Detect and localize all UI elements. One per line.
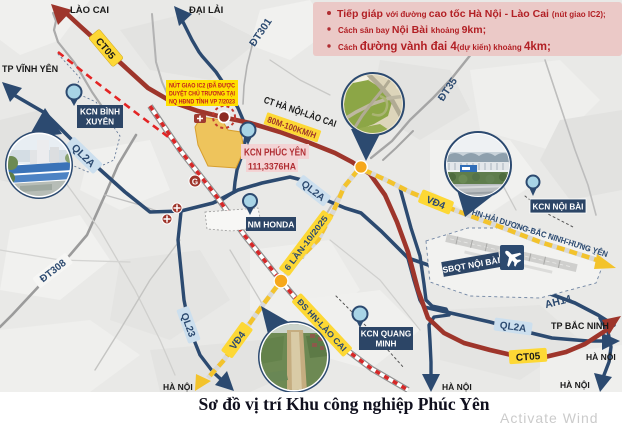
svg-text:KCN BÌNH: KCN BÌNH <box>80 107 120 117</box>
svg-text:NQ HĐND TỈNH VP 7/2023: NQ HĐND TỈNH VP 7/2023 <box>169 97 235 106</box>
svg-text:NÚT GIAO IC2 (ĐÃ ĐƯỢC: NÚT GIAO IC2 (ĐÃ ĐƯỢC <box>169 81 235 90</box>
svg-text:LÀO CAI: LÀO CAI <box>70 5 109 16</box>
svg-text:NM HONDA: NM HONDA <box>248 220 295 230</box>
svg-text:MINH: MINH <box>376 340 397 349</box>
svg-text:Tiếp giáp với đường cao tốc Hà: Tiếp giáp với đường cao tốc Hà Nội - Lào… <box>337 8 606 20</box>
svg-text:TP VĨNH YÊN: TP VĨNH YÊN <box>2 63 58 74</box>
svg-text:HÀ NỘI: HÀ NỘI <box>586 351 616 362</box>
svg-text:XUYÊN: XUYÊN <box>86 116 114 127</box>
svg-text:ĐẠI LẢI: ĐẠI LẢI <box>189 4 223 16</box>
svg-text:G: G <box>192 178 198 187</box>
svg-text:TP BẮC NINH: TP BẮC NINH <box>551 321 609 331</box>
svg-text:DUYỆT CHỦ TRƯƠNG TẠI: DUYỆT CHỦ TRƯƠNG TẠI <box>169 89 235 98</box>
svg-text:KCN PHÚC YÊN: KCN PHÚC YÊN <box>244 146 306 159</box>
svg-text:HÀ NỘI: HÀ NỘI <box>560 379 590 390</box>
svg-text:Cách đường vành đai 4(dự kiến): Cách đường vành đai 4(dự kiến) khoảng 4k… <box>338 41 551 53</box>
svg-text:HÀ NỘI: HÀ NỘI <box>442 381 472 392</box>
svg-text:KCN NỘI BÀI: KCN NỘI BÀI <box>533 201 584 212</box>
svg-text:111,3376HA: 111,3376HA <box>248 162 296 173</box>
svg-text:KCN QUANG: KCN QUANG <box>361 330 412 339</box>
svg-text:Cách sân bay Nội Bài khoảng 9k: Cách sân bay Nội Bài khoảng 9km; <box>338 24 486 36</box>
svg-text:CT05: CT05 <box>516 351 542 364</box>
svg-text:HÀ NỘI: HÀ NỘI <box>163 381 193 392</box>
